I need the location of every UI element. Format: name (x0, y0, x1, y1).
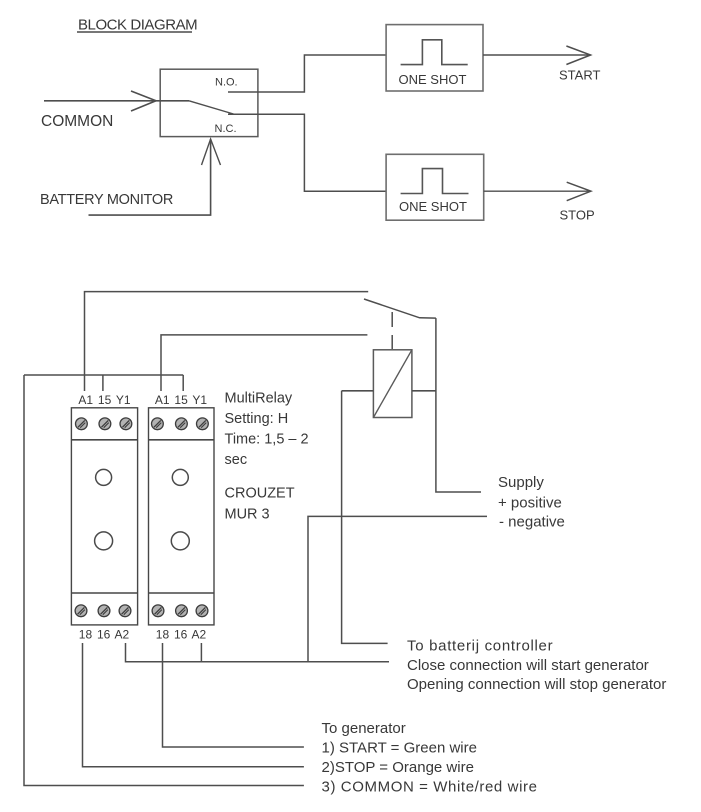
svg-text:Opening connection will stop g: Opening connection will stop generator (407, 676, 666, 693)
svg-text:18 16 A2: 18 16 A2 (156, 628, 207, 642)
svg-text:Setting: H: Setting: H (225, 411, 289, 427)
svg-text:START: START (559, 68, 600, 83)
svg-text:Time: 1,5 – 2: Time: 1,5 – 2 (225, 432, 309, 448)
svg-text:MUR 3: MUR 3 (225, 507, 270, 523)
svg-text:1) START = Green wire: 1) START = Green wire (322, 740, 477, 757)
svg-text:ONE SHOT: ONE SHOT (399, 199, 467, 214)
svg-text:Close connection will start ge: Close connection will start generator (407, 657, 649, 674)
svg-text:A1 15 Y1: A1 15 Y1 (155, 393, 207, 407)
svg-text:18 16 A2: 18 16 A2 (79, 628, 130, 642)
svg-text:MultiRelay: MultiRelay (225, 391, 293, 407)
svg-text:CROUZET: CROUZET (225, 486, 295, 502)
svg-text:BLOCK DIAGRAM: BLOCK DIAGRAM (78, 17, 197, 34)
svg-text:Supply: Supply (498, 474, 544, 491)
svg-text:N.O.: N.O. (215, 77, 238, 89)
svg-text:To generator: To generator (322, 720, 406, 737)
svg-text:STOP: STOP (560, 208, 595, 223)
svg-text:sec: sec (225, 452, 248, 468)
svg-text:- negative: - negative (499, 514, 565, 531)
svg-text:3) COMMON = White/red wire: 3) COMMON = White/red wire (322, 779, 538, 796)
svg-text:ONE SHOT: ONE SHOT (399, 72, 467, 87)
svg-text:2)STOP = Orange wire: 2)STOP = Orange wire (322, 759, 474, 776)
svg-text:+ positive: + positive (498, 495, 562, 512)
svg-text:BATTERY MONITOR: BATTERY MONITOR (40, 192, 173, 208)
svg-text:COMMON: COMMON (41, 113, 113, 130)
svg-text:A1 15 Y1: A1 15 Y1 (78, 393, 130, 407)
svg-text:N.C.: N.C. (215, 123, 237, 135)
svg-text:To batterij controller: To batterij controller (407, 638, 553, 655)
